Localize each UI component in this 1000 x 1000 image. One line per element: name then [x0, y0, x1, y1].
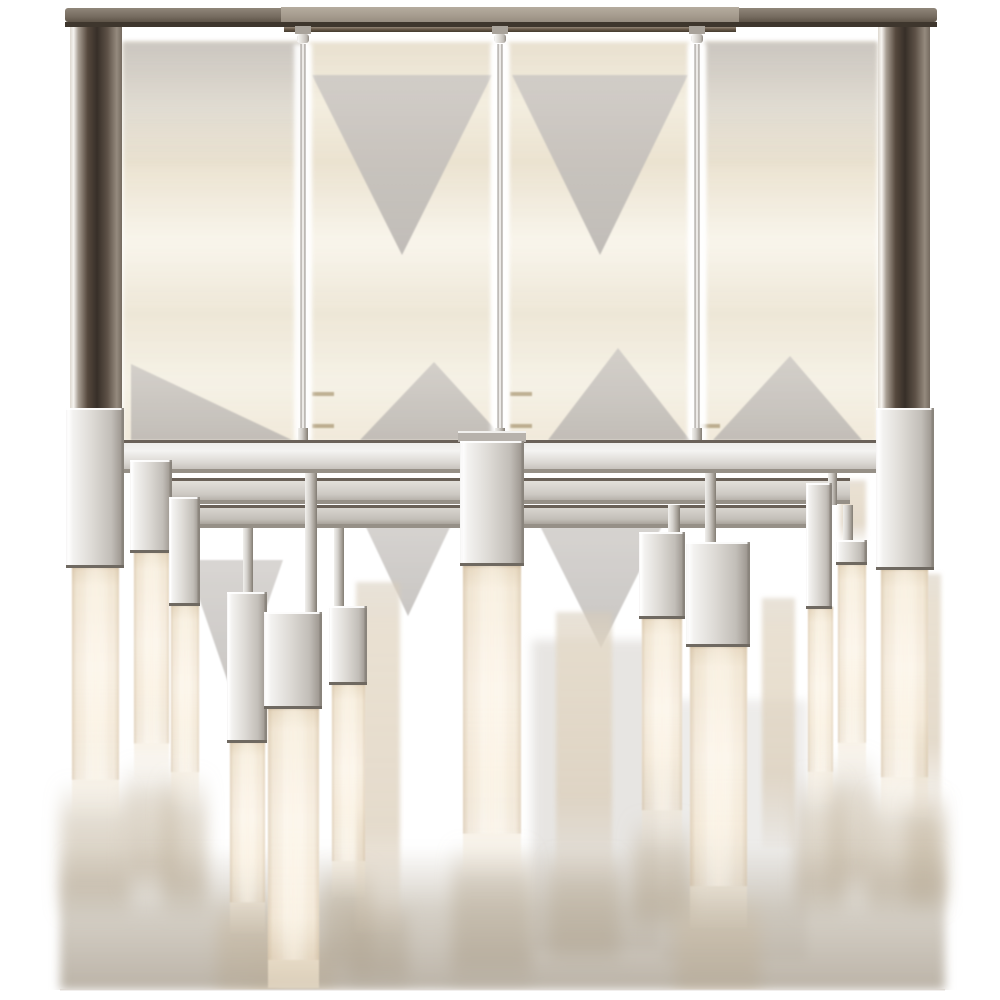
- product-page-canvas: [0, 0, 1000, 1000]
- stem: [688, 26, 706, 441]
- stem-collar: [689, 26, 705, 34]
- stem-ball: [691, 34, 703, 43]
- light-element-right-2: [686, 542, 750, 928]
- nickel-block: [130, 460, 172, 553]
- nickel-block: [836, 540, 867, 565]
- light-element-corner-left: [66, 408, 124, 818]
- nickel-block: [639, 532, 685, 619]
- stem-collar: [295, 26, 311, 34]
- nickel-block: [686, 542, 750, 647]
- nickel-block: [227, 592, 267, 743]
- hanger-strap: [334, 528, 344, 608]
- nickel-block: [806, 483, 832, 609]
- stem: [491, 26, 509, 441]
- light-element-left-2: [130, 460, 172, 780]
- nickel-block: [169, 497, 200, 606]
- chandelier-illustration: [0, 0, 1000, 1000]
- stem-nub: [298, 428, 308, 441]
- stem-rod: [695, 44, 700, 441]
- light-element-left-3: [169, 497, 200, 806]
- corner-post-left: [70, 14, 122, 410]
- stem-nub: [692, 428, 702, 441]
- canopy-center: [281, 7, 739, 23]
- nickel-block: [329, 606, 367, 685]
- stem-ball: [494, 34, 506, 43]
- nickel-block: [264, 612, 322, 709]
- light-element-right-3: [806, 483, 833, 805]
- light-element-corner-right: [876, 408, 934, 817]
- bottom-edge-line: [60, 989, 945, 991]
- bottom-white-strip: [0, 990, 1000, 1000]
- hanger-strap: [705, 473, 716, 543]
- stem-collar: [492, 26, 508, 34]
- hanger-strap: [305, 473, 317, 613]
- light-element-center: [458, 431, 526, 876]
- nickel-block: [876, 408, 934, 570]
- nickel-block: [66, 408, 124, 568]
- corner-post-right: [878, 14, 930, 410]
- hanger-strap: [668, 505, 680, 533]
- canopy-lip: [284, 27, 736, 32]
- light-element-right-4: [836, 540, 867, 779]
- stem: [294, 26, 312, 441]
- rear-rod: [556, 612, 612, 876]
- stem-rod: [498, 44, 503, 441]
- light-element-right-1: [639, 532, 685, 847]
- stem-ball: [297, 34, 309, 43]
- light-element-left-4: [227, 592, 267, 933]
- light-element-left-5: [264, 612, 322, 988]
- rear-rod: [762, 598, 795, 848]
- product-image: [0, 0, 1000, 1000]
- hanger-strap: [843, 505, 853, 541]
- light-element-left-6: [329, 606, 367, 897]
- hanger-strap: [243, 528, 253, 594]
- nickel-block: [460, 441, 524, 566]
- stem-rod: [301, 44, 306, 441]
